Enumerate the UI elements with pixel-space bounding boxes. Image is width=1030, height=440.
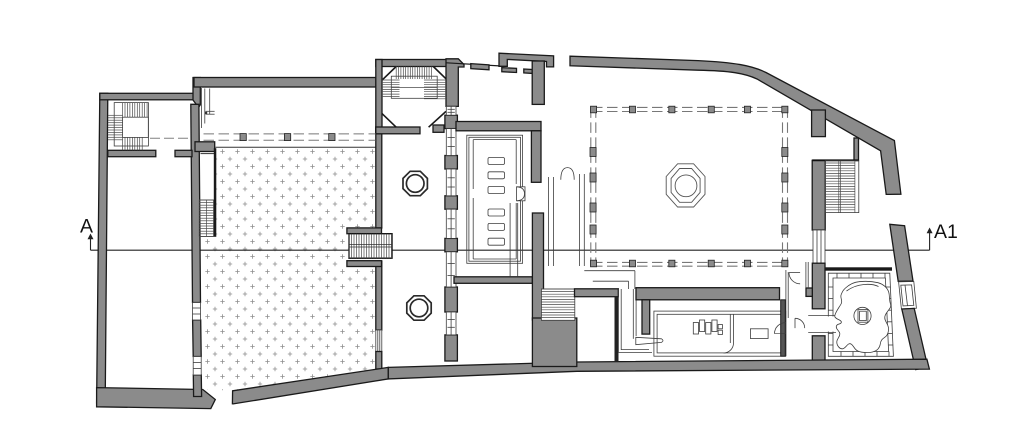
svg-text:A: A — [80, 216, 93, 238]
svg-text:A1: A1 — [934, 221, 958, 243]
